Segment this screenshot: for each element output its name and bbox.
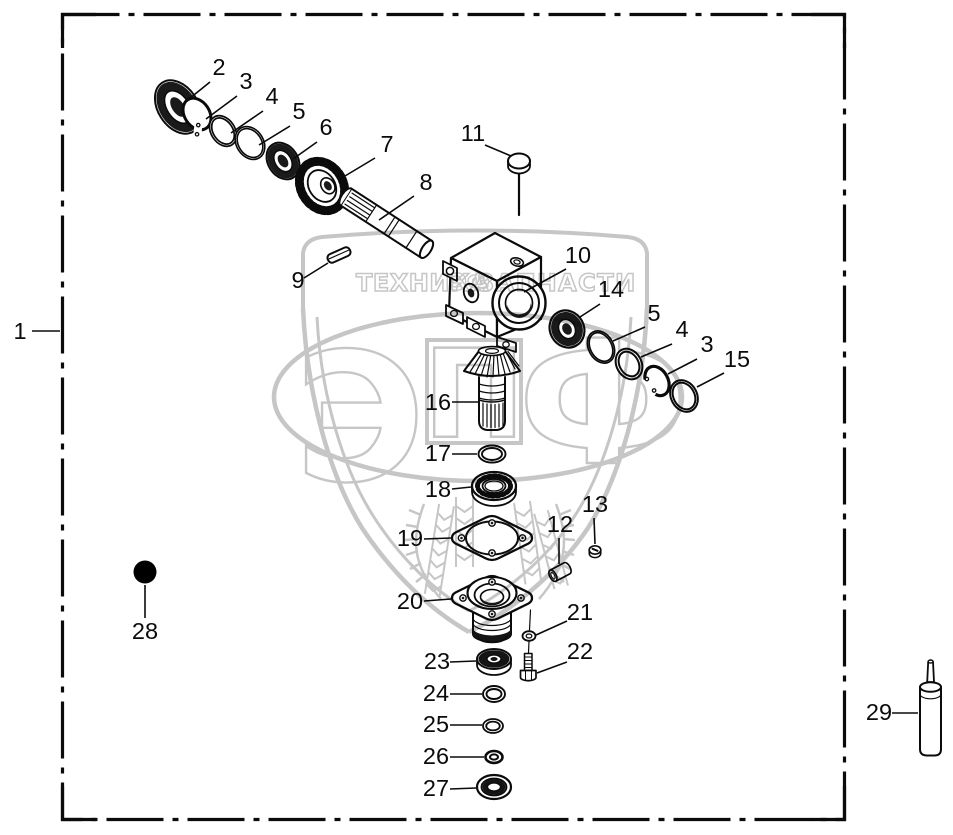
part-23-bearing-icon [477,649,511,675]
callout-label-17: 17 [425,440,451,466]
callout-label-9: 9 [291,267,304,293]
callout-label-7: 7 [380,131,393,157]
part-25-ring-icon [483,719,503,733]
callout-label-29: 29 [866,699,892,725]
callout-label-2: 2 [212,54,225,80]
callout-label-24: 24 [423,680,449,706]
callout-label-3: 3 [239,68,252,94]
part-13-plug-icon [589,546,601,558]
callout-label-4: 4 [265,83,278,109]
callout-label-19: 19 [397,525,423,551]
part-18-ball-bearing-icon [472,472,516,506]
watermark-letter-e: Э [295,315,426,522]
callout-label-4: 4 [675,316,688,342]
callout-label-8: 8 [419,169,432,195]
callout-label-23: 23 [424,648,450,674]
callout-leader-13 [594,518,595,544]
callout-label-14: 14 [598,276,624,302]
callout-label-28: 28 [132,618,158,644]
callout-leader-27 [450,788,476,789]
callout-label-5: 5 [647,300,660,326]
callout-label-25: 25 [423,711,449,737]
part-28-grease-dot-icon [134,561,157,584]
callout-label-15: 15 [724,346,750,372]
callout-label-16: 16 [425,389,451,415]
part-21-washer-icon [523,631,536,641]
callout-label-11: 11 [461,120,485,146]
callout-label-1: 1 [13,318,26,344]
part-26-ring-icon [486,751,503,763]
callout-label-20: 20 [397,588,423,614]
callout-label-13: 13 [582,491,608,517]
part-24-ring-icon [483,686,505,702]
callout-label-10: 10 [565,242,591,268]
callout-label-6: 6 [319,114,332,140]
callout-label-18: 18 [425,476,451,502]
watermark-letter-f: Ф [518,303,689,504]
callout-leader-23 [450,661,476,662]
parts-diagram: Э П Ф ТЕХНИКА ЭФ ЗАПЧАСТИ 12345678910111… [0,0,953,835]
callout-label-27: 27 [423,775,449,801]
callout-label-3: 3 [700,331,713,357]
callout-label-26: 26 [423,743,449,769]
callout-label-5: 5 [292,98,305,124]
callout-label-21: 21 [567,599,593,625]
callout-label-22: 22 [567,638,593,664]
callout-leader-19 [424,538,451,539]
part-27-seal-icon [477,775,511,799]
callout-label-12: 12 [547,511,573,537]
